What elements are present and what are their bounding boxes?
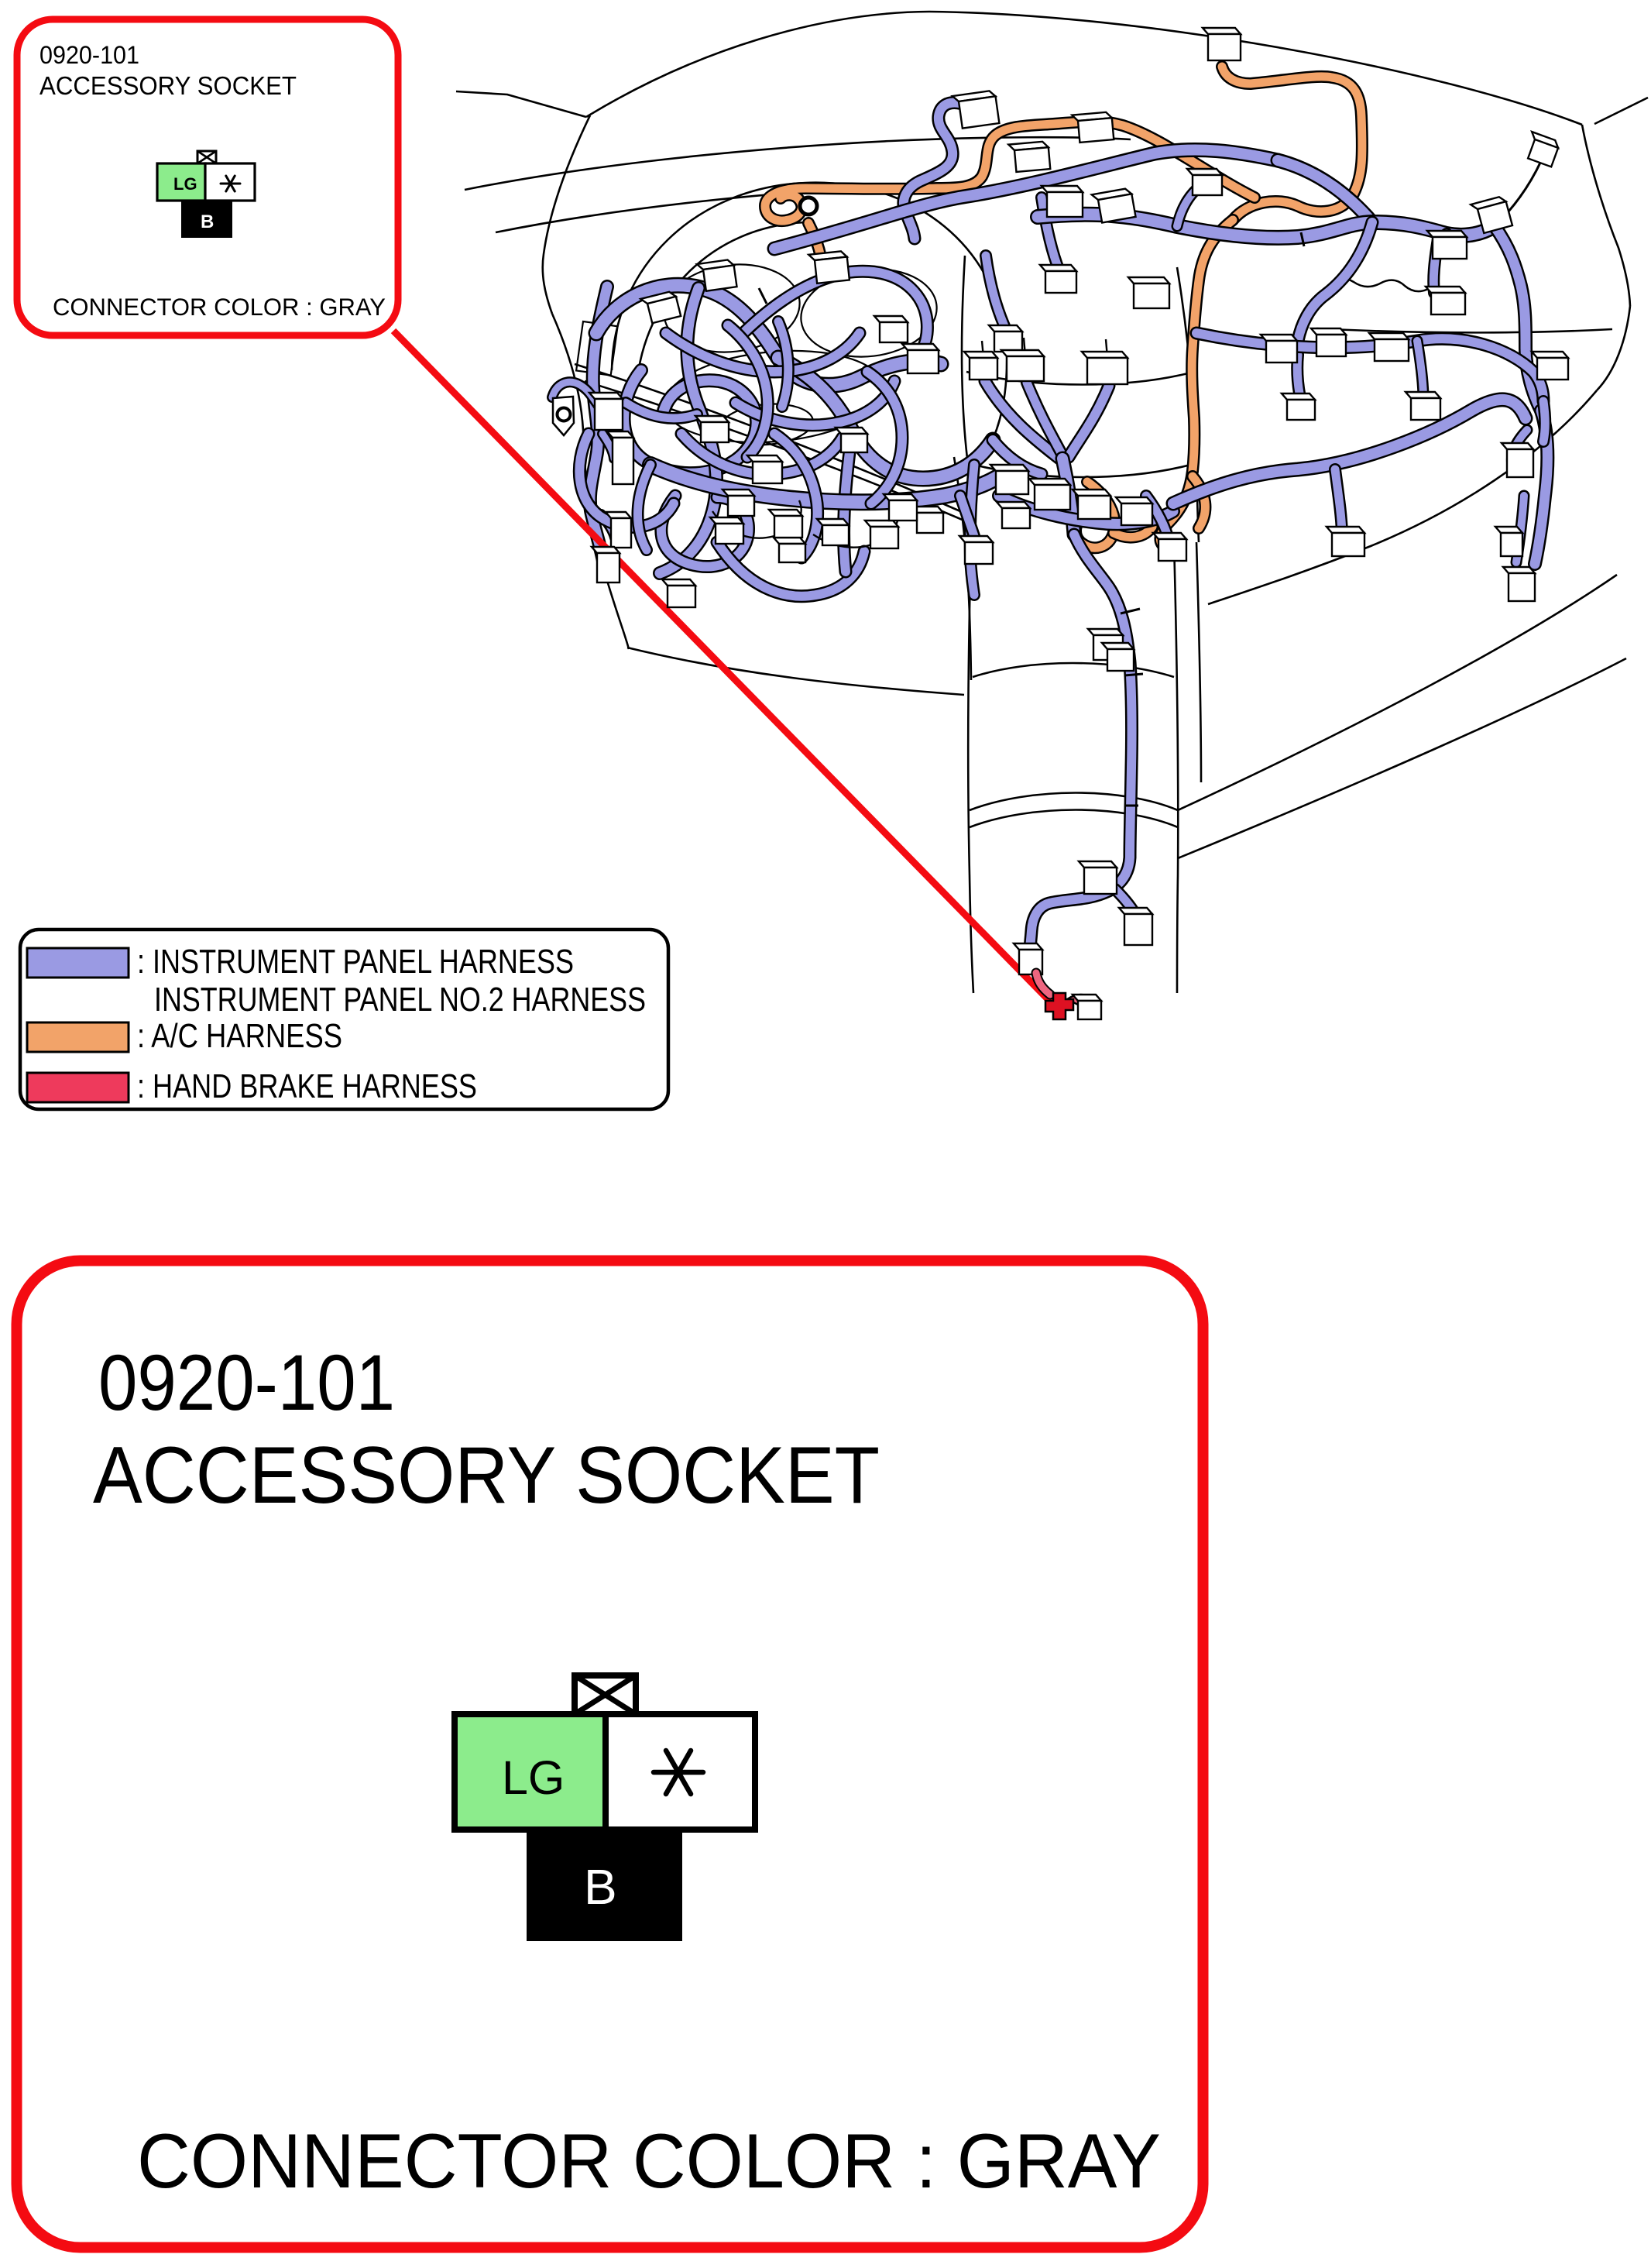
svg-text:B: B <box>201 211 214 232</box>
svg-text:LG: LG <box>502 1751 565 1804</box>
svg-text:CONNECTOR COLOR : GRAY: CONNECTOR COLOR : GRAY <box>53 293 386 321</box>
svg-text:B: B <box>584 1859 617 1915</box>
svg-text:LG: LG <box>173 174 197 194</box>
svg-text:ACCESSORY SOCKET: ACCESSORY SOCKET <box>93 1431 880 1521</box>
svg-text:0920-101: 0920-101 <box>39 41 139 69</box>
svg-text:: HAND BRAKE HARNESS: : HAND BRAKE HARNESS <box>137 1067 477 1105</box>
svg-text:0920-101: 0920-101 <box>98 1338 395 1427</box>
svg-text:INSTRUMENT PANEL NO.2 HARNESS: INSTRUMENT PANEL NO.2 HARNESS <box>154 981 646 1019</box>
svg-text:ACCESSORY SOCKET: ACCESSORY SOCKET <box>39 71 297 100</box>
svg-text:: A/C HARNESS: : A/C HARNESS <box>137 1017 342 1055</box>
svg-text:: INSTRUMENT PANEL HARNESS: : INSTRUMENT PANEL HARNESS <box>137 943 574 981</box>
svg-text:CONNECTOR COLOR : GRAY: CONNECTOR COLOR : GRAY <box>137 2118 1161 2204</box>
